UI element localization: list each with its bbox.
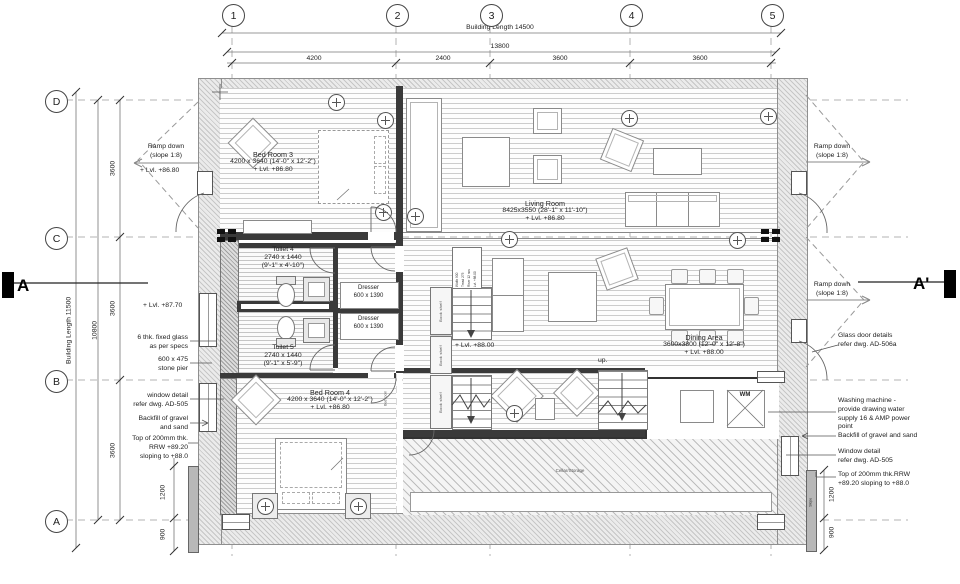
slope-label: Slope: [809, 482, 814, 522]
floor-plan-drawing: 1 2 3 4 5 D C B A A A' Building Length 1…: [0, 0, 960, 584]
registration-cross: [212, 84, 228, 100]
grid-bubble-1: 1: [222, 4, 245, 27]
grid-bubble-5: 5: [761, 4, 784, 27]
dim-left-1200: 1200: [160, 472, 169, 512]
note-washing-machine: Washing machine - provide drawing water …: [838, 397, 930, 432]
bedroom3-level: Lvl. +86.80: [203, 166, 343, 175]
toilet5-size-ft: (9'-1" x 5'-9"): [233, 360, 333, 369]
dim-13800: 13800: [400, 43, 600, 52]
note-rrw-right: Top of 200mm thk.RRW +89.20 sloping to +…: [838, 471, 933, 489]
dining-level: Lvl. +88.00: [634, 349, 774, 358]
dim-right-900: 900: [829, 512, 838, 552]
note-backfill-right: Backfill of gravel and sand: [838, 432, 943, 441]
dim-building-length-left: Building Length 11500: [66, 275, 75, 385]
stair-break-lines: [452, 395, 646, 415]
note-fixed-glass: 6 thk. fixed glass as per specs: [108, 334, 188, 352]
dim-right-1200: 1200: [829, 474, 838, 514]
up-label: up.: [598, 357, 618, 366]
bedroom4-level: Lvl. +86.80: [260, 404, 400, 413]
dim-seg-3600a: 3600: [510, 55, 610, 64]
dim-left-3600-2: 3600: [110, 288, 119, 328]
dim-left-3600-1: 3600: [110, 148, 119, 188]
toilet4-size-ft: (9'-1" x 4'-10"): [233, 262, 333, 271]
ramp-right-top: [806, 95, 870, 229]
dim-building-length-top: Building Length 14500: [400, 24, 600, 33]
grid-bubble-2: 2: [386, 4, 409, 27]
note-level-8680: Lvl. +86.80: [140, 167, 200, 176]
grid-bubble-C: C: [45, 227, 68, 250]
note-stone-pier: 600 x 475 stone pier: [108, 356, 188, 374]
dim-seg-2400: 2400: [393, 55, 493, 64]
door-swing-arcs: [176, 193, 827, 455]
note-glass-door: Glass door details refer dwg. AD-506a: [838, 332, 923, 350]
dresser1-size: 600 x 1390: [340, 293, 397, 301]
living-level: Lvl. +86.80: [475, 215, 615, 224]
note-ramp-right-top: Ramp down (slope 1:8): [802, 143, 862, 161]
dim-seg-4200: 4200: [264, 55, 364, 64]
bedroom-door-tag: Bed room: [384, 378, 389, 418]
cellar-label: Cellar/Storage: [530, 468, 610, 474]
note-backfill-left: Backfill of gravel and sand: [103, 415, 188, 433]
dim-10800: 10800: [92, 305, 101, 355]
wm-label: WM: [727, 392, 763, 400]
note-level-8770: Lvl. +87.70: [143, 302, 203, 311]
section-marker-bar-left: [2, 272, 14, 298]
grid-bubble-4: 4: [620, 4, 643, 27]
dresser2-size: 600 x 1390: [340, 324, 397, 332]
dim-left-900: 900: [160, 514, 169, 554]
family-level: Lvl. +88.00: [455, 342, 525, 351]
grid-bubble-B: B: [45, 370, 68, 393]
dresser1-name: Dresser: [340, 285, 397, 293]
dresser2-name: Dresser: [340, 316, 397, 324]
note-rrw-left: Top of 200mm thk. RRW +89.20 sloping to …: [100, 435, 188, 461]
note-window-right: Window detail refer dwg. AD-505: [838, 448, 923, 466]
section-label-right: A': [913, 274, 929, 294]
note-ramp-left: Ramp down (slope 1:8): [136, 143, 196, 161]
note-ramp-right-mid: Ramp down (slope 1:8): [802, 281, 862, 299]
grid-bubble-A: A: [45, 510, 68, 533]
section-marker-bar-right: [944, 270, 956, 298]
section-label-left: A: [17, 276, 29, 296]
dim-seg-3600b: 3600: [650, 55, 750, 64]
grid-bubble-3: 3: [480, 4, 503, 27]
ramp-left: [134, 102, 198, 228]
note-window-left: window detail refer dwg. AD-505: [103, 392, 188, 410]
grid-bubble-D: D: [45, 90, 68, 113]
